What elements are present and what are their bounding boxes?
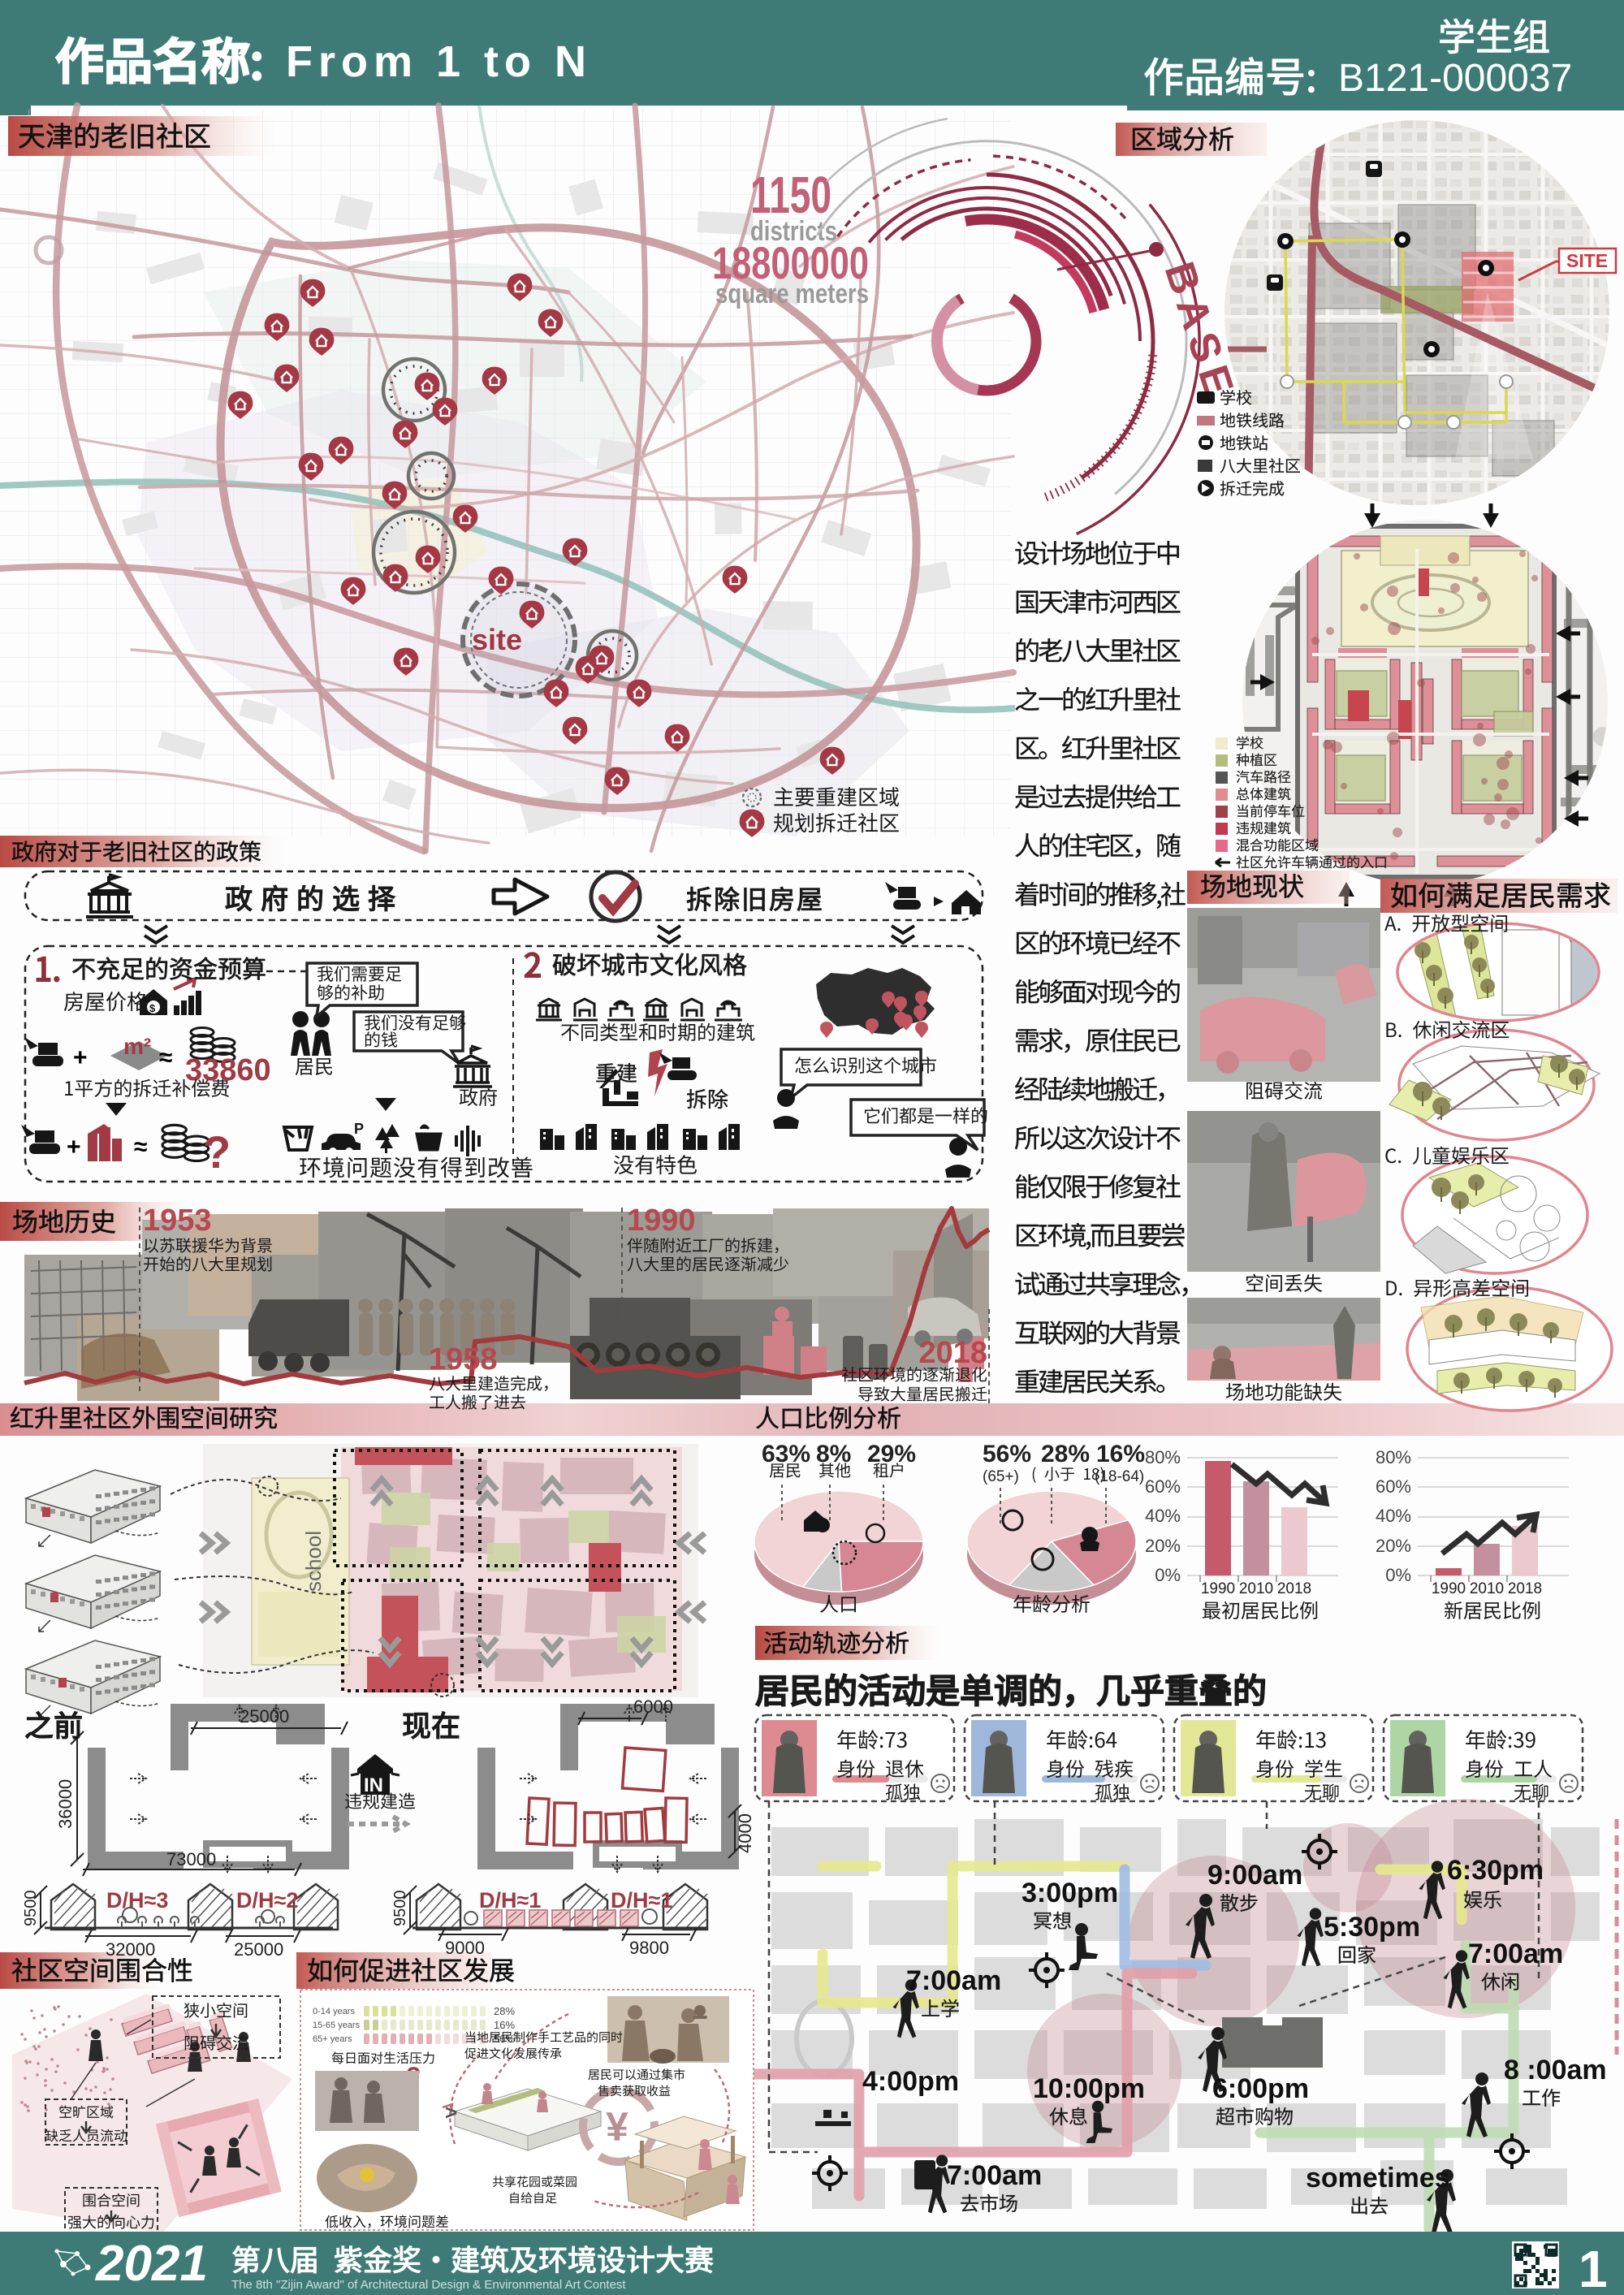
svg-text:≈: ≈ (159, 1044, 172, 1071)
svg-text:(65+): (65+) (983, 1468, 1019, 1485)
svg-text:6:30pm: 6:30pm (1447, 1855, 1544, 1886)
svg-text:16%: 16% (1096, 1441, 1145, 1467)
svg-text:28%: 28% (494, 2005, 515, 2017)
svg-text:3:00pm: 3:00pm (1021, 1878, 1118, 1908)
svg-text:36000: 36000 (55, 1779, 76, 1829)
svg-text:80%: 80% (1145, 1447, 1181, 1467)
svg-text:+: + (73, 1044, 88, 1071)
svg-text:15-65 years: 15-65 years (313, 2021, 361, 2030)
svg-text:+: + (67, 1134, 81, 1160)
svg-text:D/H≈2: D/H≈2 (236, 1888, 298, 1912)
svg-text:2018: 2018 (918, 1336, 987, 1370)
svg-text:40%: 40% (1145, 1506, 1181, 1526)
svg-text:school: school (301, 1531, 326, 1592)
svg-text:63%: 63% (762, 1441, 810, 1467)
svg-text:0%: 0% (1155, 1565, 1181, 1585)
svg-text:4:00pm: 4:00pm (862, 2066, 959, 2097)
svg-text:2018: 2018 (1277, 1580, 1311, 1597)
svg-text:1990: 1990 (1432, 1580, 1466, 1597)
svg-text:40%: 40% (1376, 1506, 1411, 1526)
svg-text:0%: 0% (1385, 1565, 1411, 1585)
svg-text:1953: 1953 (143, 1204, 212, 1238)
svg-text:4000: 4000 (735, 1813, 755, 1853)
svg-text:D/H≈1: D/H≈1 (479, 1888, 541, 1912)
svg-text:2010: 2010 (1239, 1580, 1273, 1597)
svg-text:D/H≈3: D/H≈3 (106, 1888, 168, 1912)
svg-text:From 1 to N: From 1 to N (286, 37, 592, 86)
svg-text:≈: ≈ (134, 1134, 147, 1160)
svg-text:site: site (472, 623, 522, 656)
svg-text:>: > (445, 2100, 457, 2124)
svg-text:73000: 73000 (166, 1849, 216, 1869)
svg-text:5:30pm: 5:30pm (1324, 1912, 1420, 1943)
svg-text:65+ years: 65+ years (313, 2034, 352, 2044)
svg-text:square meters: square meters (715, 279, 869, 309)
svg-text:9800: 9800 (629, 1938, 669, 1958)
svg-text:9500: 9500 (391, 1891, 409, 1927)
svg-text:1990: 1990 (627, 1204, 696, 1238)
svg-text:¥: ¥ (606, 2104, 628, 2150)
svg-text:B121-000037: B121-000037 (1338, 57, 1572, 100)
svg-text:8 :00am: 8 :00am (1504, 2055, 1607, 2085)
svg-text:25000: 25000 (234, 1939, 283, 1960)
svg-text:$: $ (149, 1002, 156, 1014)
svg-text:sometimes: sometimes (1306, 2163, 1450, 2193)
svg-text:6:00pm: 6:00pm (1212, 2073, 1309, 2104)
svg-text:m²: m² (123, 1034, 151, 1059)
svg-text:32000: 32000 (106, 1939, 155, 1960)
svg-text:7:00am: 7:00am (906, 1965, 1001, 1996)
svg-text:28%: 28% (1041, 1441, 1090, 1467)
svg-text:60%: 60% (1376, 1476, 1411, 1497)
svg-text:6000: 6000 (633, 1696, 673, 1717)
svg-text:16%: 16% (494, 2019, 515, 2031)
svg-text:2010: 2010 (1470, 1580, 1504, 1597)
svg-text:0-14 years: 0-14 years (313, 2007, 355, 2016)
svg-text:1990: 1990 (1201, 1580, 1235, 1597)
svg-text:9:00am: 9:00am (1207, 1860, 1302, 1891)
svg-text:60%: 60% (1145, 1476, 1181, 1497)
svg-text:33860: 33860 (185, 1053, 271, 1087)
svg-text:29%: 29% (867, 1441, 916, 1467)
svg-text:D/H≈1: D/H≈1 (611, 1888, 672, 1912)
svg-text:9500: 9500 (22, 1891, 40, 1927)
svg-text:25000: 25000 (240, 1706, 289, 1727)
svg-text:1: 1 (1579, 2240, 1608, 2295)
svg-text:10:00pm: 10:00pm (1033, 2073, 1145, 2104)
svg-text:The 8th "Zijin Award" of Archi: The 8th "Zijin Award" of Architectural D… (231, 2278, 626, 2292)
svg-text:8%: 8% (816, 1441, 851, 1467)
svg-text:9000: 9000 (445, 1938, 485, 1958)
svg-text:SITE: SITE (1566, 250, 1608, 271)
svg-text:7:00am: 7:00am (1468, 1938, 1563, 1969)
svg-text:?: ? (203, 1126, 231, 1178)
svg-text:2021: 2021 (95, 2236, 208, 2292)
svg-text:P: P (354, 1121, 364, 1137)
svg-text:56%: 56% (983, 1441, 1031, 1467)
svg-text:2018: 2018 (1508, 1580, 1542, 1597)
svg-text:20%: 20% (1145, 1536, 1181, 1556)
svg-text:80%: 80% (1376, 1447, 1411, 1467)
svg-text:1958: 1958 (429, 1342, 498, 1377)
svg-text:20%: 20% (1376, 1536, 1411, 1556)
svg-text:7:00am: 7:00am (947, 2160, 1042, 2191)
